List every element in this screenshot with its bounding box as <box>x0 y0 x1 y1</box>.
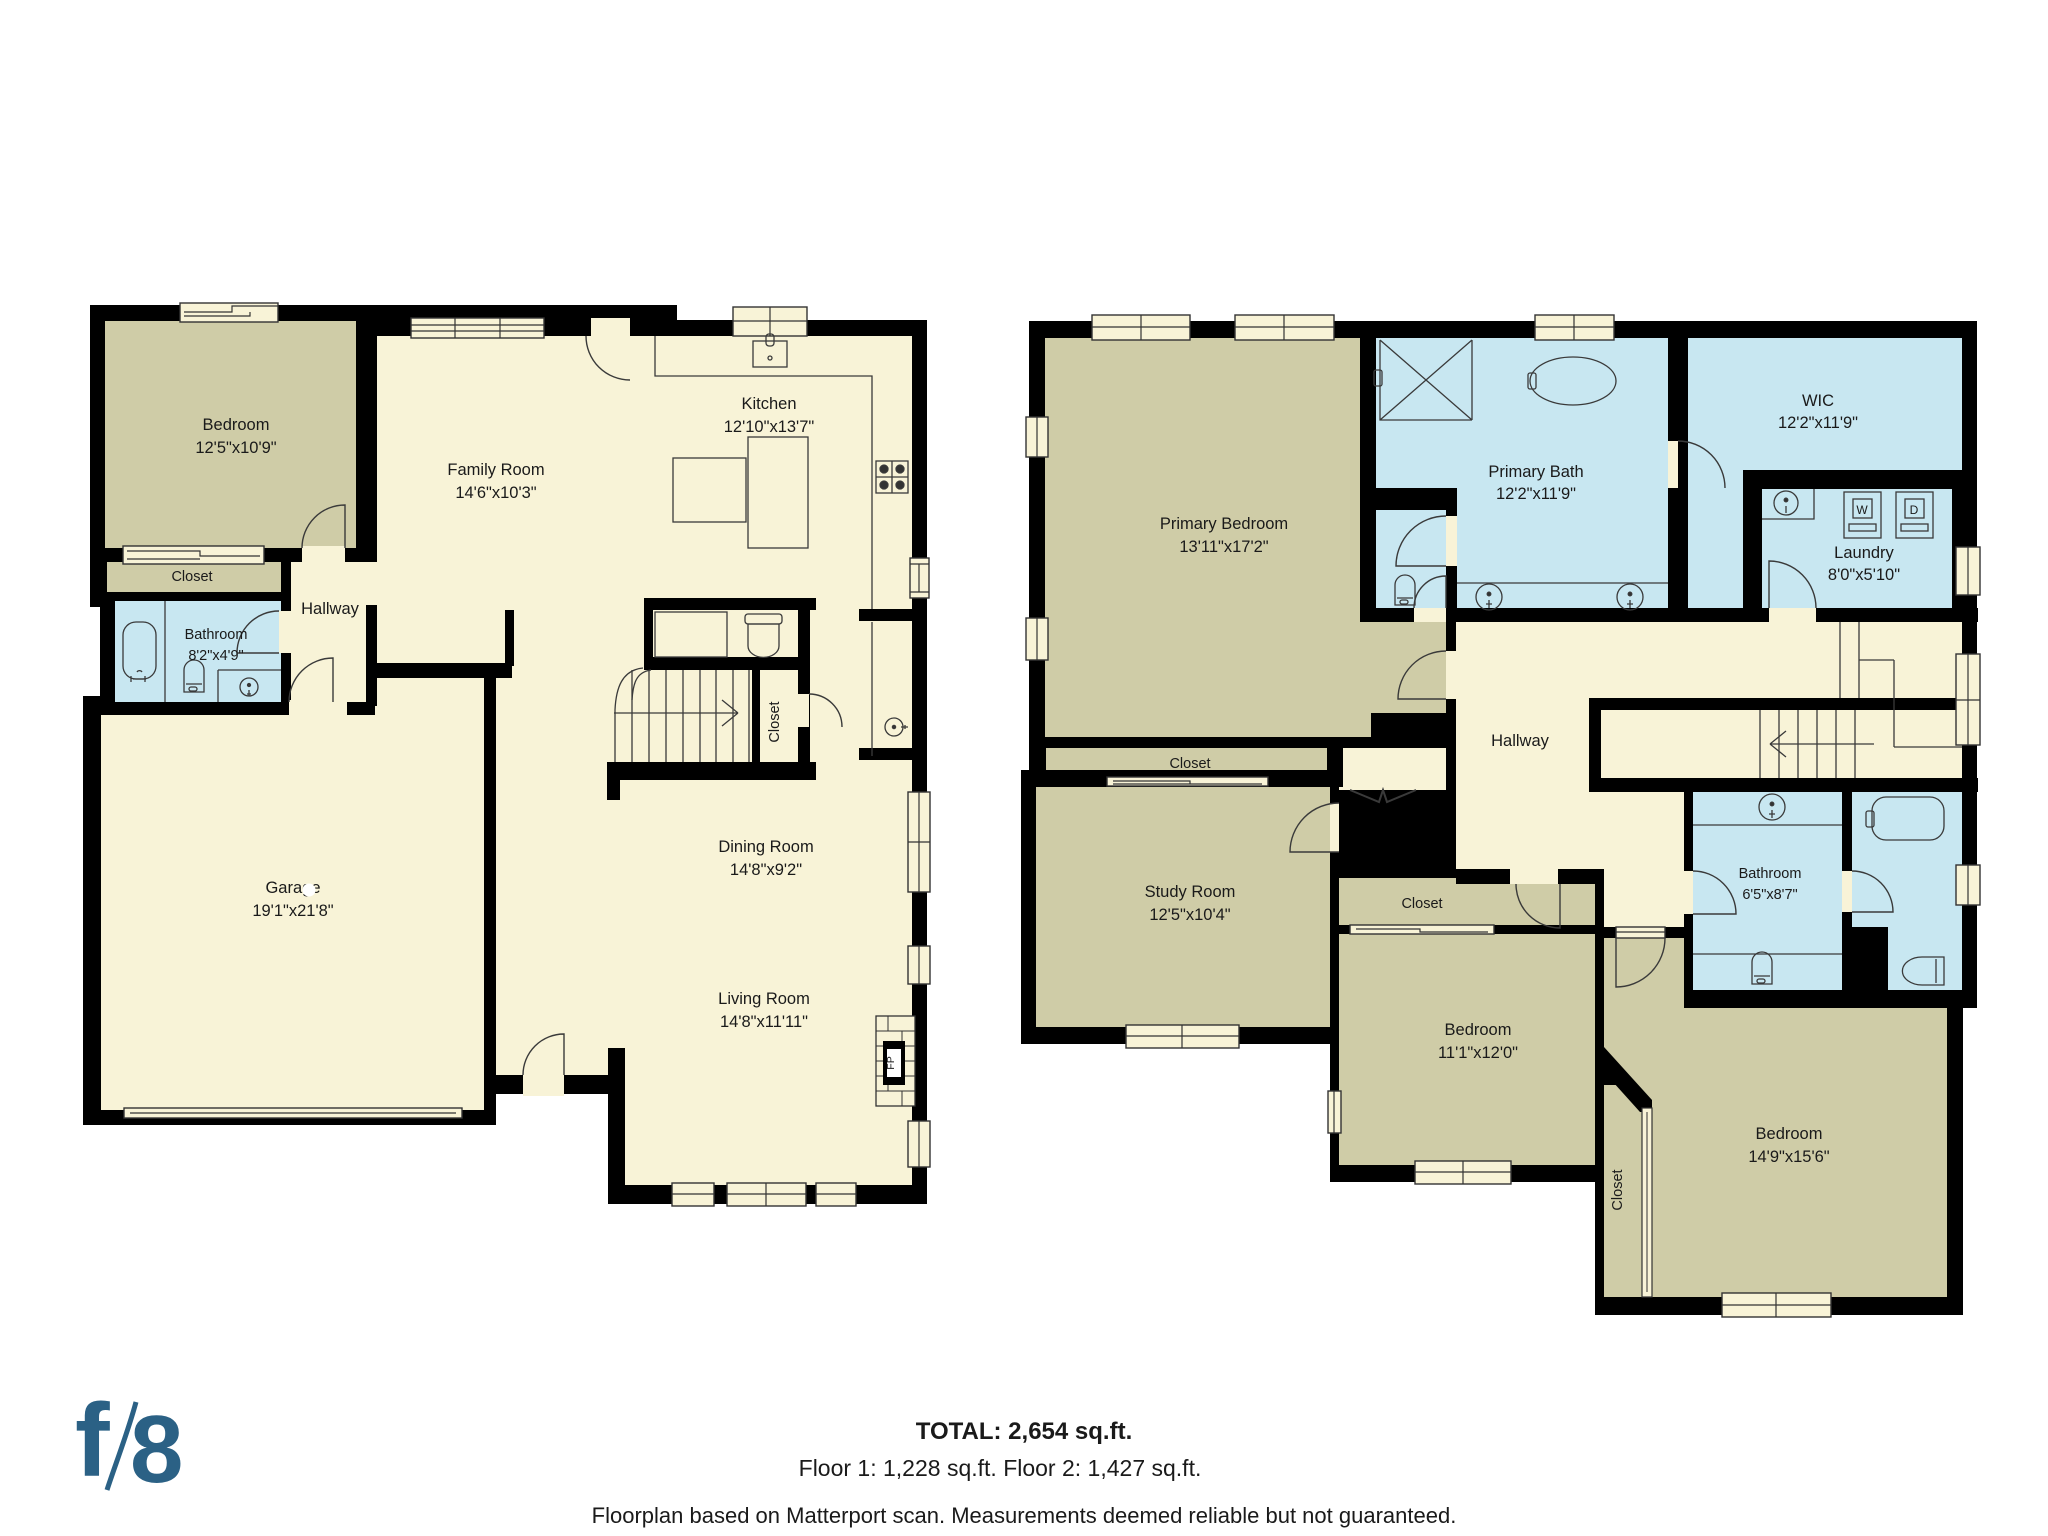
svg-text:Closet: Closet <box>171 569 212 585</box>
svg-text:Study Room: Study Room <box>1145 883 1236 901</box>
svg-text:Family Room: Family Room <box>447 461 544 479</box>
svg-text:f: f <box>75 1383 110 1499</box>
svg-text:8'0"x5'10": 8'0"x5'10" <box>1828 566 1900 584</box>
svg-text:W: W <box>1856 503 1868 517</box>
svg-text:Bedroom: Bedroom <box>1756 1125 1823 1143</box>
svg-text:TOTAL: 2,654 sq.ft.: TOTAL: 2,654 sq.ft. <box>916 1418 1132 1445</box>
svg-text:Closet: Closet <box>1401 896 1442 912</box>
svg-text:Bedroom: Bedroom <box>203 416 270 434</box>
svg-text:WIC: WIC <box>1802 392 1834 410</box>
svg-text:Bedroom: Bedroom <box>1445 1021 1512 1039</box>
svg-text:6'5"x8'7": 6'5"x8'7" <box>1742 887 1797 903</box>
svg-text:Closet: Closet <box>1169 756 1210 772</box>
svg-text:Hallway: Hallway <box>1491 732 1550 750</box>
svg-text:Hallway: Hallway <box>301 600 360 618</box>
svg-text:Closet: Closet <box>767 701 783 742</box>
svg-text:14'6"x10'3": 14'6"x10'3" <box>455 484 536 502</box>
svg-text:Primary Bath: Primary Bath <box>1488 463 1583 481</box>
svg-text:FP: FP <box>885 1056 897 1069</box>
svg-text:Kitchen: Kitchen <box>741 395 796 413</box>
svg-text:12'10"x13'7": 12'10"x13'7" <box>724 418 815 436</box>
svg-text:Floorplan based on Matterport: Floorplan based on Matterport scan. Meas… <box>592 1503 1457 1528</box>
svg-text:Bathroom: Bathroom <box>1739 866 1802 882</box>
svg-text:14'9"x15'6": 14'9"x15'6" <box>1748 1148 1829 1166</box>
svg-text:14'8"x9'2": 14'8"x9'2" <box>730 861 802 879</box>
svg-text:8'2"x4'9": 8'2"x4'9" <box>188 648 243 664</box>
svg-text:12'5"x10'4": 12'5"x10'4" <box>1149 906 1230 924</box>
svg-text:14'8"x11'11": 14'8"x11'11" <box>720 1013 808 1031</box>
svg-text:D: D <box>1910 503 1919 517</box>
svg-text:Living Room: Living Room <box>718 990 810 1008</box>
svg-text:12'2"x11'9": 12'2"x11'9" <box>1496 485 1576 503</box>
svg-text:Floor 1: 1,228 sq.ft. Floor 2:: Floor 1: 1,228 sq.ft. Floor 2: 1,427 sq.… <box>799 1455 1202 1481</box>
svg-text:11'1"x12'0": 11'1"x12'0" <box>1438 1044 1518 1062</box>
svg-text:Primary Bedroom: Primary Bedroom <box>1160 515 1288 533</box>
svg-text:Closet: Closet <box>1610 1169 1626 1210</box>
svg-text:12'2"x11'9": 12'2"x11'9" <box>1778 414 1858 432</box>
svg-text:Dining Room: Dining Room <box>718 838 813 856</box>
svg-text:13'11"x17'2": 13'11"x17'2" <box>1179 538 1268 556</box>
svg-text:Laundry: Laundry <box>1834 544 1894 562</box>
svg-text:Bathroom: Bathroom <box>185 627 248 643</box>
svg-text:12'5"x10'9": 12'5"x10'9" <box>195 439 276 457</box>
svg-text:19'1"x21'8": 19'1"x21'8" <box>252 902 333 920</box>
svg-text:8: 8 <box>130 1396 183 1503</box>
